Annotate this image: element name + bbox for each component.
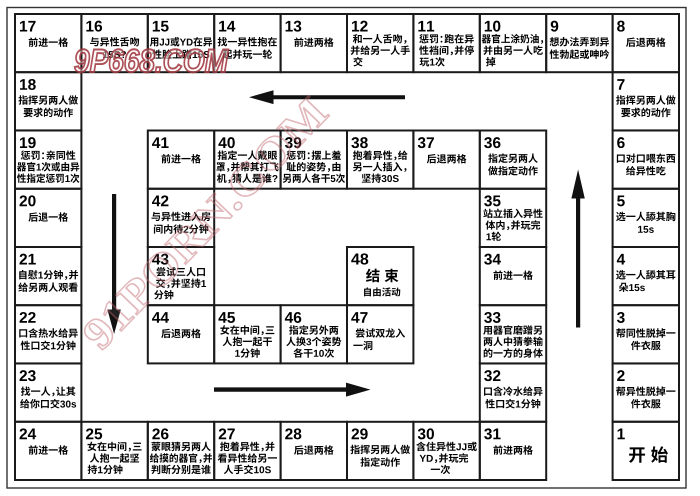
svg-text:9P668.COM: 9P668.COM [74,43,229,79]
